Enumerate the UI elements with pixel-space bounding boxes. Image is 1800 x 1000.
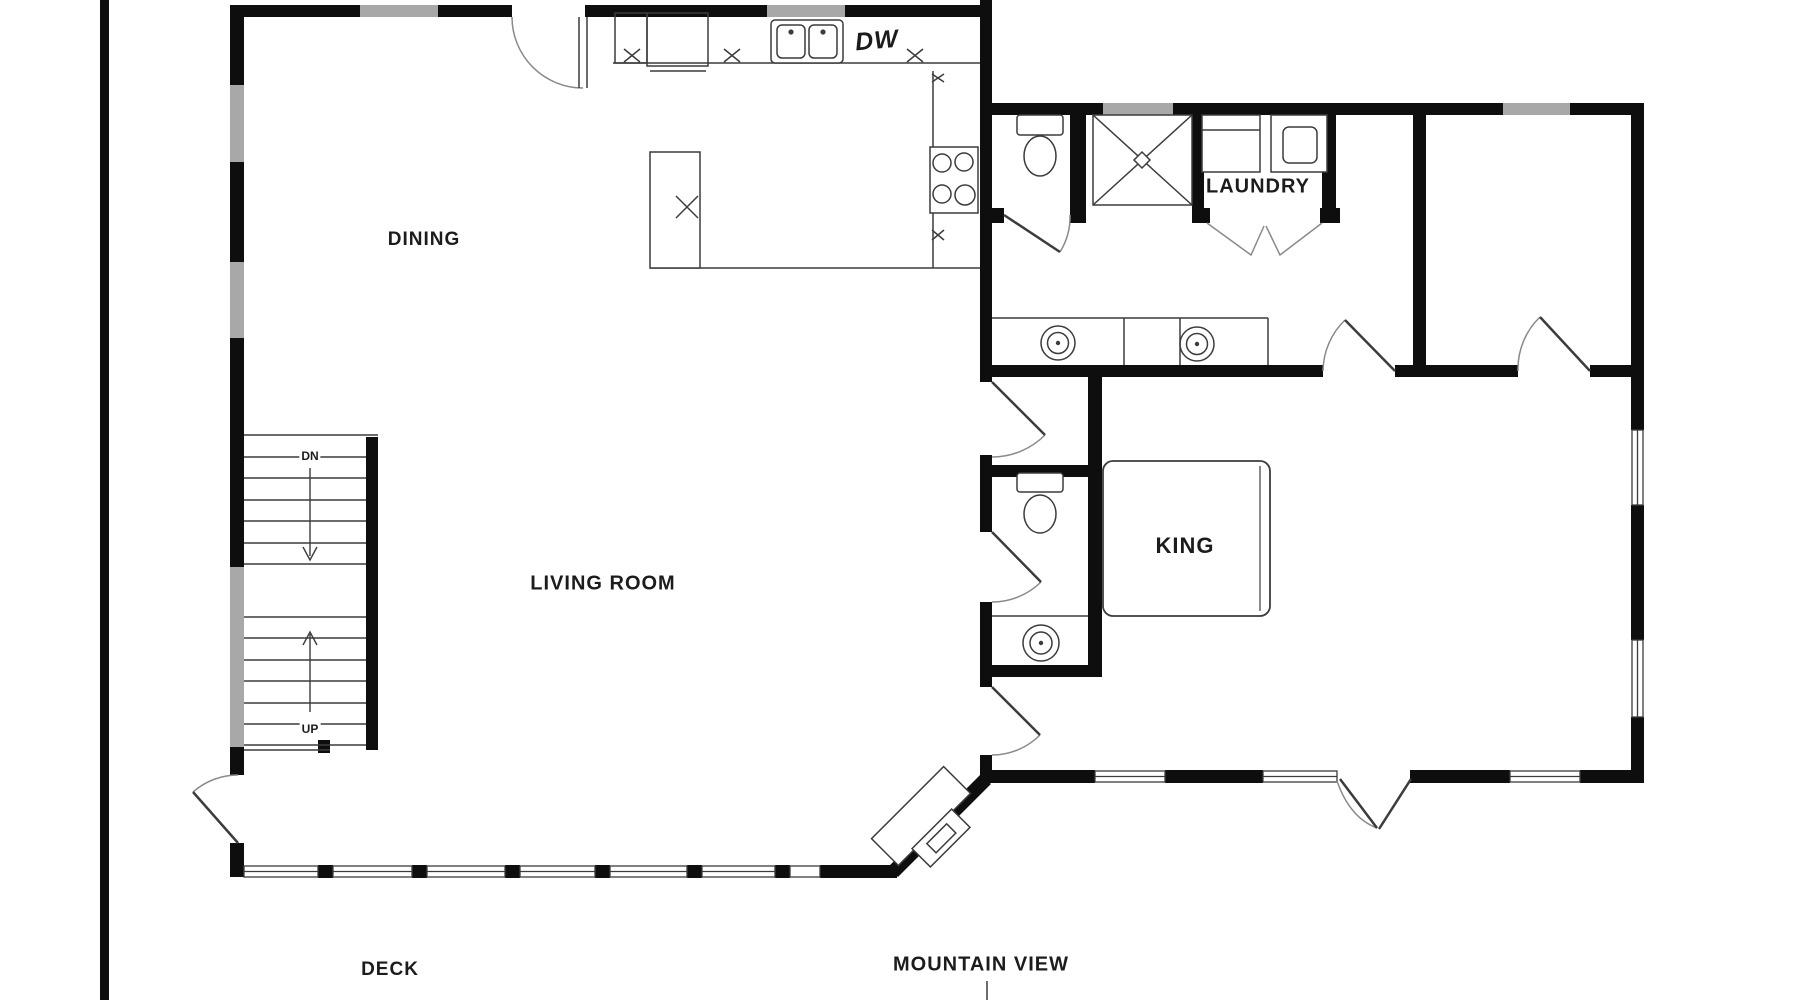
kitchen <box>613 13 980 268</box>
stair-arrow-down <box>303 468 317 560</box>
floor-plan-drawing <box>0 0 1800 1000</box>
window <box>1103 103 1173 115</box>
bedroom-hall-door <box>992 687 1040 755</box>
double-vanity <box>992 318 1268 365</box>
washer <box>1202 115 1260 172</box>
doors <box>193 17 1590 843</box>
kitchen-double-sink <box>771 20 843 63</box>
fireplace <box>872 767 971 867</box>
range-cooktop <box>930 147 978 213</box>
kitchen-island <box>650 152 700 268</box>
stair-label-down: DN <box>299 449 320 463</box>
window <box>1503 103 1570 115</box>
entry-door <box>512 17 587 88</box>
cabinet-mark <box>724 49 740 62</box>
cabinet-mark <box>932 230 944 240</box>
annotation-mountain-view: MOUNTAIN VIEW <box>893 954 1069 977</box>
staircase <box>244 435 378 750</box>
room-label-living-room: LIVING ROOM <box>530 573 675 596</box>
room-label-king: KING <box>1156 533 1215 559</box>
window <box>230 85 244 162</box>
stair-label-up: UP <box>300 722 321 736</box>
property-line <box>100 0 109 1000</box>
room-label-deck: DECK <box>361 959 419 981</box>
cabinet <box>647 13 708 66</box>
room-label-dining: DINING <box>388 229 461 251</box>
toilet-powder-room <box>1017 473 1063 533</box>
deck-door <box>193 775 238 843</box>
window <box>230 567 244 747</box>
window <box>767 5 845 17</box>
shower <box>1093 115 1192 205</box>
toilet-master-bath <box>1017 115 1063 176</box>
closet-door <box>1518 317 1590 371</box>
window <box>360 5 438 17</box>
cabinet-mark <box>932 74 944 82</box>
cabinet-mark <box>907 49 923 62</box>
laundry-hall-door <box>1323 320 1395 371</box>
dishwasher-label: DW <box>854 25 900 58</box>
cabinet-mark <box>624 49 640 62</box>
french-doors <box>1337 779 1411 829</box>
powder-room-door <box>992 532 1041 602</box>
dryer <box>1271 115 1327 172</box>
bifold-doors <box>1207 223 1322 255</box>
windows-glass <box>230 5 1570 747</box>
bath-hall-door <box>992 382 1045 457</box>
floor-plan-canvas: DINING LIVING ROOM KING LAUNDRY DECK MOU… <box>0 0 1800 1000</box>
stair-arrow-up <box>303 632 317 712</box>
toilet-room-door <box>1004 215 1070 252</box>
window <box>230 262 244 338</box>
powder-room <box>992 473 1088 661</box>
room-label-laundry: LAUNDRY <box>1206 176 1310 199</box>
powder-room-sink <box>992 616 1088 661</box>
